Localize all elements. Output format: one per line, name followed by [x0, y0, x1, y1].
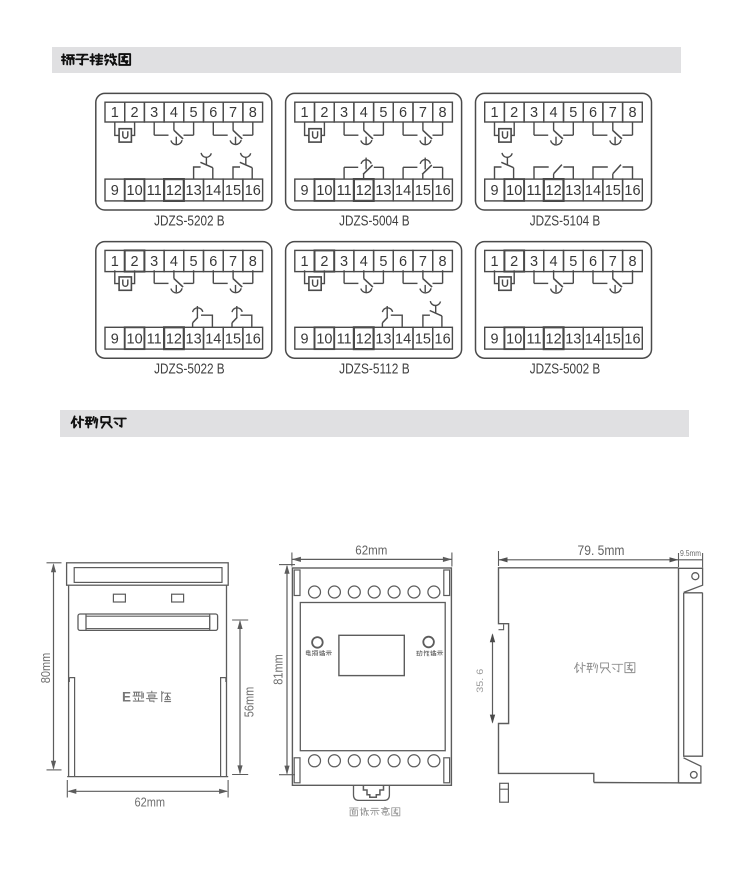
- svg-text:16: 16: [435, 183, 451, 199]
- svg-text:JDZS-5104 B: JDZS-5104 B: [530, 213, 601, 229]
- svg-text:7: 7: [229, 254, 237, 270]
- svg-text:E: E: [122, 690, 131, 705]
- svg-text:3: 3: [530, 105, 538, 121]
- svg-text:4: 4: [360, 105, 368, 121]
- svg-text:JDZS-5022 B: JDZS-5022 B: [154, 362, 225, 378]
- svg-text:3: 3: [150, 105, 158, 121]
- svg-text:10: 10: [127, 331, 143, 347]
- svg-text:2: 2: [131, 254, 139, 270]
- svg-text:9: 9: [301, 183, 309, 199]
- svg-text:5: 5: [379, 105, 387, 121]
- svg-text:7: 7: [229, 105, 237, 121]
- svg-text:56mm: 56mm: [242, 687, 257, 718]
- svg-text:16: 16: [245, 183, 261, 199]
- svg-text:15: 15: [605, 183, 621, 199]
- svg-text:8: 8: [439, 254, 447, 270]
- svg-text:11: 11: [337, 183, 352, 199]
- svg-text:13: 13: [565, 331, 581, 347]
- svg-text:3: 3: [340, 105, 348, 121]
- svg-text:5: 5: [190, 254, 198, 270]
- svg-text:7: 7: [609, 254, 617, 270]
- svg-text:8: 8: [628, 105, 636, 121]
- svg-text:1: 1: [111, 254, 119, 270]
- svg-text:7: 7: [609, 105, 617, 121]
- svg-text:3: 3: [530, 254, 538, 270]
- svg-text:8: 8: [249, 105, 257, 121]
- svg-text:9: 9: [301, 331, 309, 347]
- svg-text:5: 5: [379, 254, 387, 270]
- svg-text:7: 7: [419, 254, 427, 270]
- svg-text:9: 9: [111, 183, 119, 199]
- svg-text:11: 11: [147, 183, 162, 199]
- svg-text:JDZS-5112 B: JDZS-5112 B: [339, 362, 410, 378]
- svg-text:62mm: 62mm: [135, 795, 166, 810]
- svg-text:16: 16: [435, 331, 451, 347]
- svg-text:16: 16: [245, 331, 261, 347]
- svg-text:7: 7: [419, 105, 427, 121]
- svg-text:62mm: 62mm: [355, 543, 387, 558]
- svg-text:9: 9: [111, 331, 119, 347]
- svg-text:14: 14: [395, 331, 411, 347]
- svg-text:15: 15: [605, 331, 621, 347]
- svg-text:12: 12: [356, 183, 372, 199]
- svg-text:14: 14: [205, 331, 221, 347]
- svg-text:4: 4: [550, 105, 558, 121]
- svg-text:8: 8: [249, 254, 257, 270]
- svg-text:2: 2: [510, 254, 518, 270]
- svg-text:JDZS-5002 B: JDZS-5002 B: [530, 362, 601, 378]
- svg-text:16: 16: [624, 183, 640, 199]
- svg-text:9.5mm: 9.5mm: [680, 548, 701, 558]
- svg-text:11: 11: [337, 331, 352, 347]
- svg-text:13: 13: [186, 331, 202, 347]
- svg-text:1: 1: [301, 254, 309, 270]
- svg-text:10: 10: [316, 183, 332, 199]
- svg-text:8: 8: [439, 105, 447, 121]
- svg-text:2: 2: [131, 105, 139, 121]
- svg-text:13: 13: [186, 183, 202, 199]
- svg-text:2: 2: [320, 105, 328, 121]
- svg-text:12: 12: [356, 331, 372, 347]
- svg-text:79. 5mm: 79. 5mm: [578, 543, 625, 558]
- svg-text:6: 6: [399, 105, 407, 121]
- svg-text:5: 5: [569, 105, 577, 121]
- svg-text:12: 12: [166, 183, 182, 199]
- svg-text:35. 6: 35. 6: [475, 669, 486, 693]
- svg-text:6: 6: [589, 105, 597, 121]
- svg-text:6: 6: [589, 254, 597, 270]
- svg-text:10: 10: [316, 331, 332, 347]
- svg-text:1: 1: [490, 105, 498, 121]
- svg-text:14: 14: [585, 183, 601, 199]
- svg-text:4: 4: [170, 105, 178, 121]
- svg-text:16: 16: [624, 331, 640, 347]
- svg-text:5: 5: [190, 105, 198, 121]
- svg-text:4: 4: [360, 254, 368, 270]
- svg-text:15: 15: [225, 183, 241, 199]
- svg-text:10: 10: [506, 183, 522, 199]
- svg-text:3: 3: [340, 254, 348, 270]
- svg-text:4: 4: [170, 254, 178, 270]
- svg-text:2: 2: [320, 254, 328, 270]
- svg-text:3: 3: [150, 254, 158, 270]
- svg-text:JDZS-5004 B: JDZS-5004 B: [339, 213, 410, 229]
- svg-text:4: 4: [550, 254, 558, 270]
- svg-text:6: 6: [209, 254, 217, 270]
- svg-text:15: 15: [415, 183, 431, 199]
- svg-text:11: 11: [526, 183, 541, 199]
- svg-text:2: 2: [510, 105, 518, 121]
- svg-text:1: 1: [301, 105, 309, 121]
- svg-text:6: 6: [399, 254, 407, 270]
- svg-text:11: 11: [526, 331, 541, 347]
- svg-text:JDZS-5202 B: JDZS-5202 B: [154, 213, 225, 229]
- svg-text:1: 1: [111, 105, 119, 121]
- svg-text:13: 13: [375, 331, 391, 347]
- svg-text:5: 5: [569, 254, 577, 270]
- svg-text:15: 15: [415, 331, 431, 347]
- svg-text:14: 14: [205, 183, 221, 199]
- svg-text:81mm: 81mm: [270, 654, 285, 685]
- svg-text:14: 14: [585, 331, 601, 347]
- svg-text:14: 14: [395, 183, 411, 199]
- svg-text:9: 9: [490, 331, 498, 347]
- svg-text:6: 6: [209, 105, 217, 121]
- svg-text:13: 13: [375, 183, 391, 199]
- svg-text:10: 10: [127, 183, 143, 199]
- svg-text:13: 13: [565, 183, 581, 199]
- svg-text:12: 12: [546, 183, 562, 199]
- svg-text:12: 12: [546, 331, 562, 347]
- svg-text:1: 1: [490, 254, 498, 270]
- svg-text:9: 9: [490, 183, 498, 199]
- svg-text:80mm: 80mm: [38, 653, 53, 684]
- svg-text:11: 11: [147, 331, 162, 347]
- svg-text:8: 8: [628, 254, 636, 270]
- svg-text:12: 12: [166, 331, 182, 347]
- svg-text:15: 15: [225, 331, 241, 347]
- svg-text:10: 10: [506, 331, 522, 347]
